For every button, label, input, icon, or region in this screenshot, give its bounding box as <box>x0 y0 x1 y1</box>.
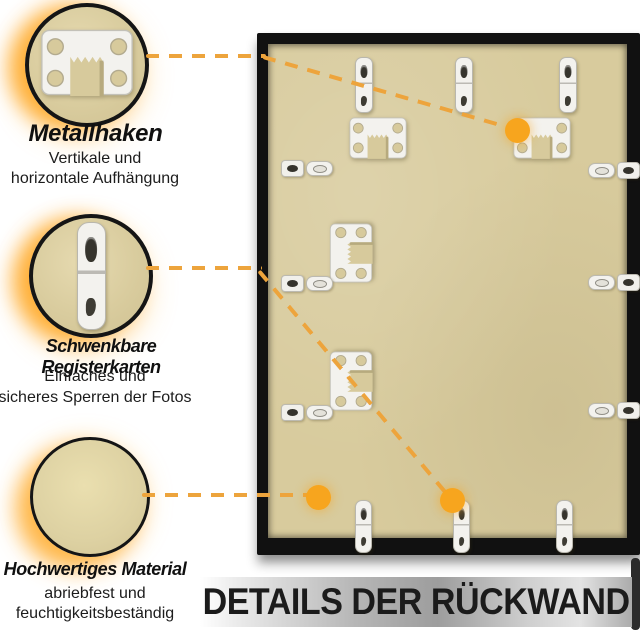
hotspot-dot-material <box>306 485 331 510</box>
swivel-tab <box>355 500 372 553</box>
edge-clip <box>281 160 304 177</box>
callout-description-swivel-tab: Einfaches und sicheres Sperren der Fotos <box>0 366 195 408</box>
edge-clip <box>617 402 640 419</box>
callout-description-material: abriebfest und feuchtigkeitsbeständig <box>0 584 190 624</box>
swivel-tab <box>556 500 573 553</box>
swivel-tab-icon <box>77 222 106 330</box>
banner-title: DETAILS DER RÜCKWAND <box>203 581 630 623</box>
hotspot-dot-metal-hook <box>505 118 530 143</box>
banner: DETAILS DER RÜCKWAND <box>200 577 632 627</box>
edge-clip <box>588 163 615 178</box>
edge-clip-pair <box>588 274 640 291</box>
callout-description-metal-hook: Vertikale und horizontale Aufhängung <box>0 149 190 189</box>
description-line: Vertikale und <box>0 149 190 169</box>
description-line: horizontale Aufhängung <box>0 169 190 189</box>
edge-clip <box>281 275 304 292</box>
edge-clip <box>306 161 333 176</box>
edge-clip-pair <box>588 162 640 179</box>
description-line: feuchtigkeitsbeständig <box>0 604 190 624</box>
description-line: Einfaches und <box>0 366 195 387</box>
edge-clip <box>617 274 640 291</box>
callout-circle-metal-hook <box>25 3 149 127</box>
description-line: sicheres Sperren der Fotos <box>0 387 195 408</box>
edge-clip <box>588 403 615 418</box>
edge-clip <box>281 404 304 421</box>
edge-clip-pair <box>281 275 333 292</box>
description-line: abriebfest und <box>0 584 190 604</box>
callout-circle-swivel-tab <box>29 214 153 338</box>
sawtooth-hanger <box>349 117 407 159</box>
edge-clip-pair <box>281 160 333 177</box>
connector-line-swivel-tab <box>146 266 262 270</box>
banner-end-bar <box>631 558 640 630</box>
swivel-tab <box>559 57 577 113</box>
sawtooth-hanger-icon <box>40 29 134 96</box>
callout-title-metal-hook: Metallhaken <box>3 120 188 148</box>
edge-clip <box>306 276 333 291</box>
edge-clip <box>306 405 333 420</box>
callout-title-material: Hochwertiges Material <box>0 559 190 580</box>
product-detail-image: Metallhaken Vertikale und horizontale Au… <box>0 0 640 632</box>
backing-board <box>268 44 627 538</box>
edge-clip-pair <box>588 402 640 419</box>
edge-clip <box>617 162 640 179</box>
hotspot-dot-swivel-tab <box>440 488 465 513</box>
edge-clip-pair <box>281 404 333 421</box>
connector-line-metal-hook <box>146 54 266 58</box>
sawtooth-hanger-rotated <box>329 223 373 283</box>
swivel-tab <box>455 57 473 113</box>
edge-clip <box>588 275 615 290</box>
callout-circle-material <box>30 437 150 557</box>
connector-line-material <box>142 493 320 497</box>
